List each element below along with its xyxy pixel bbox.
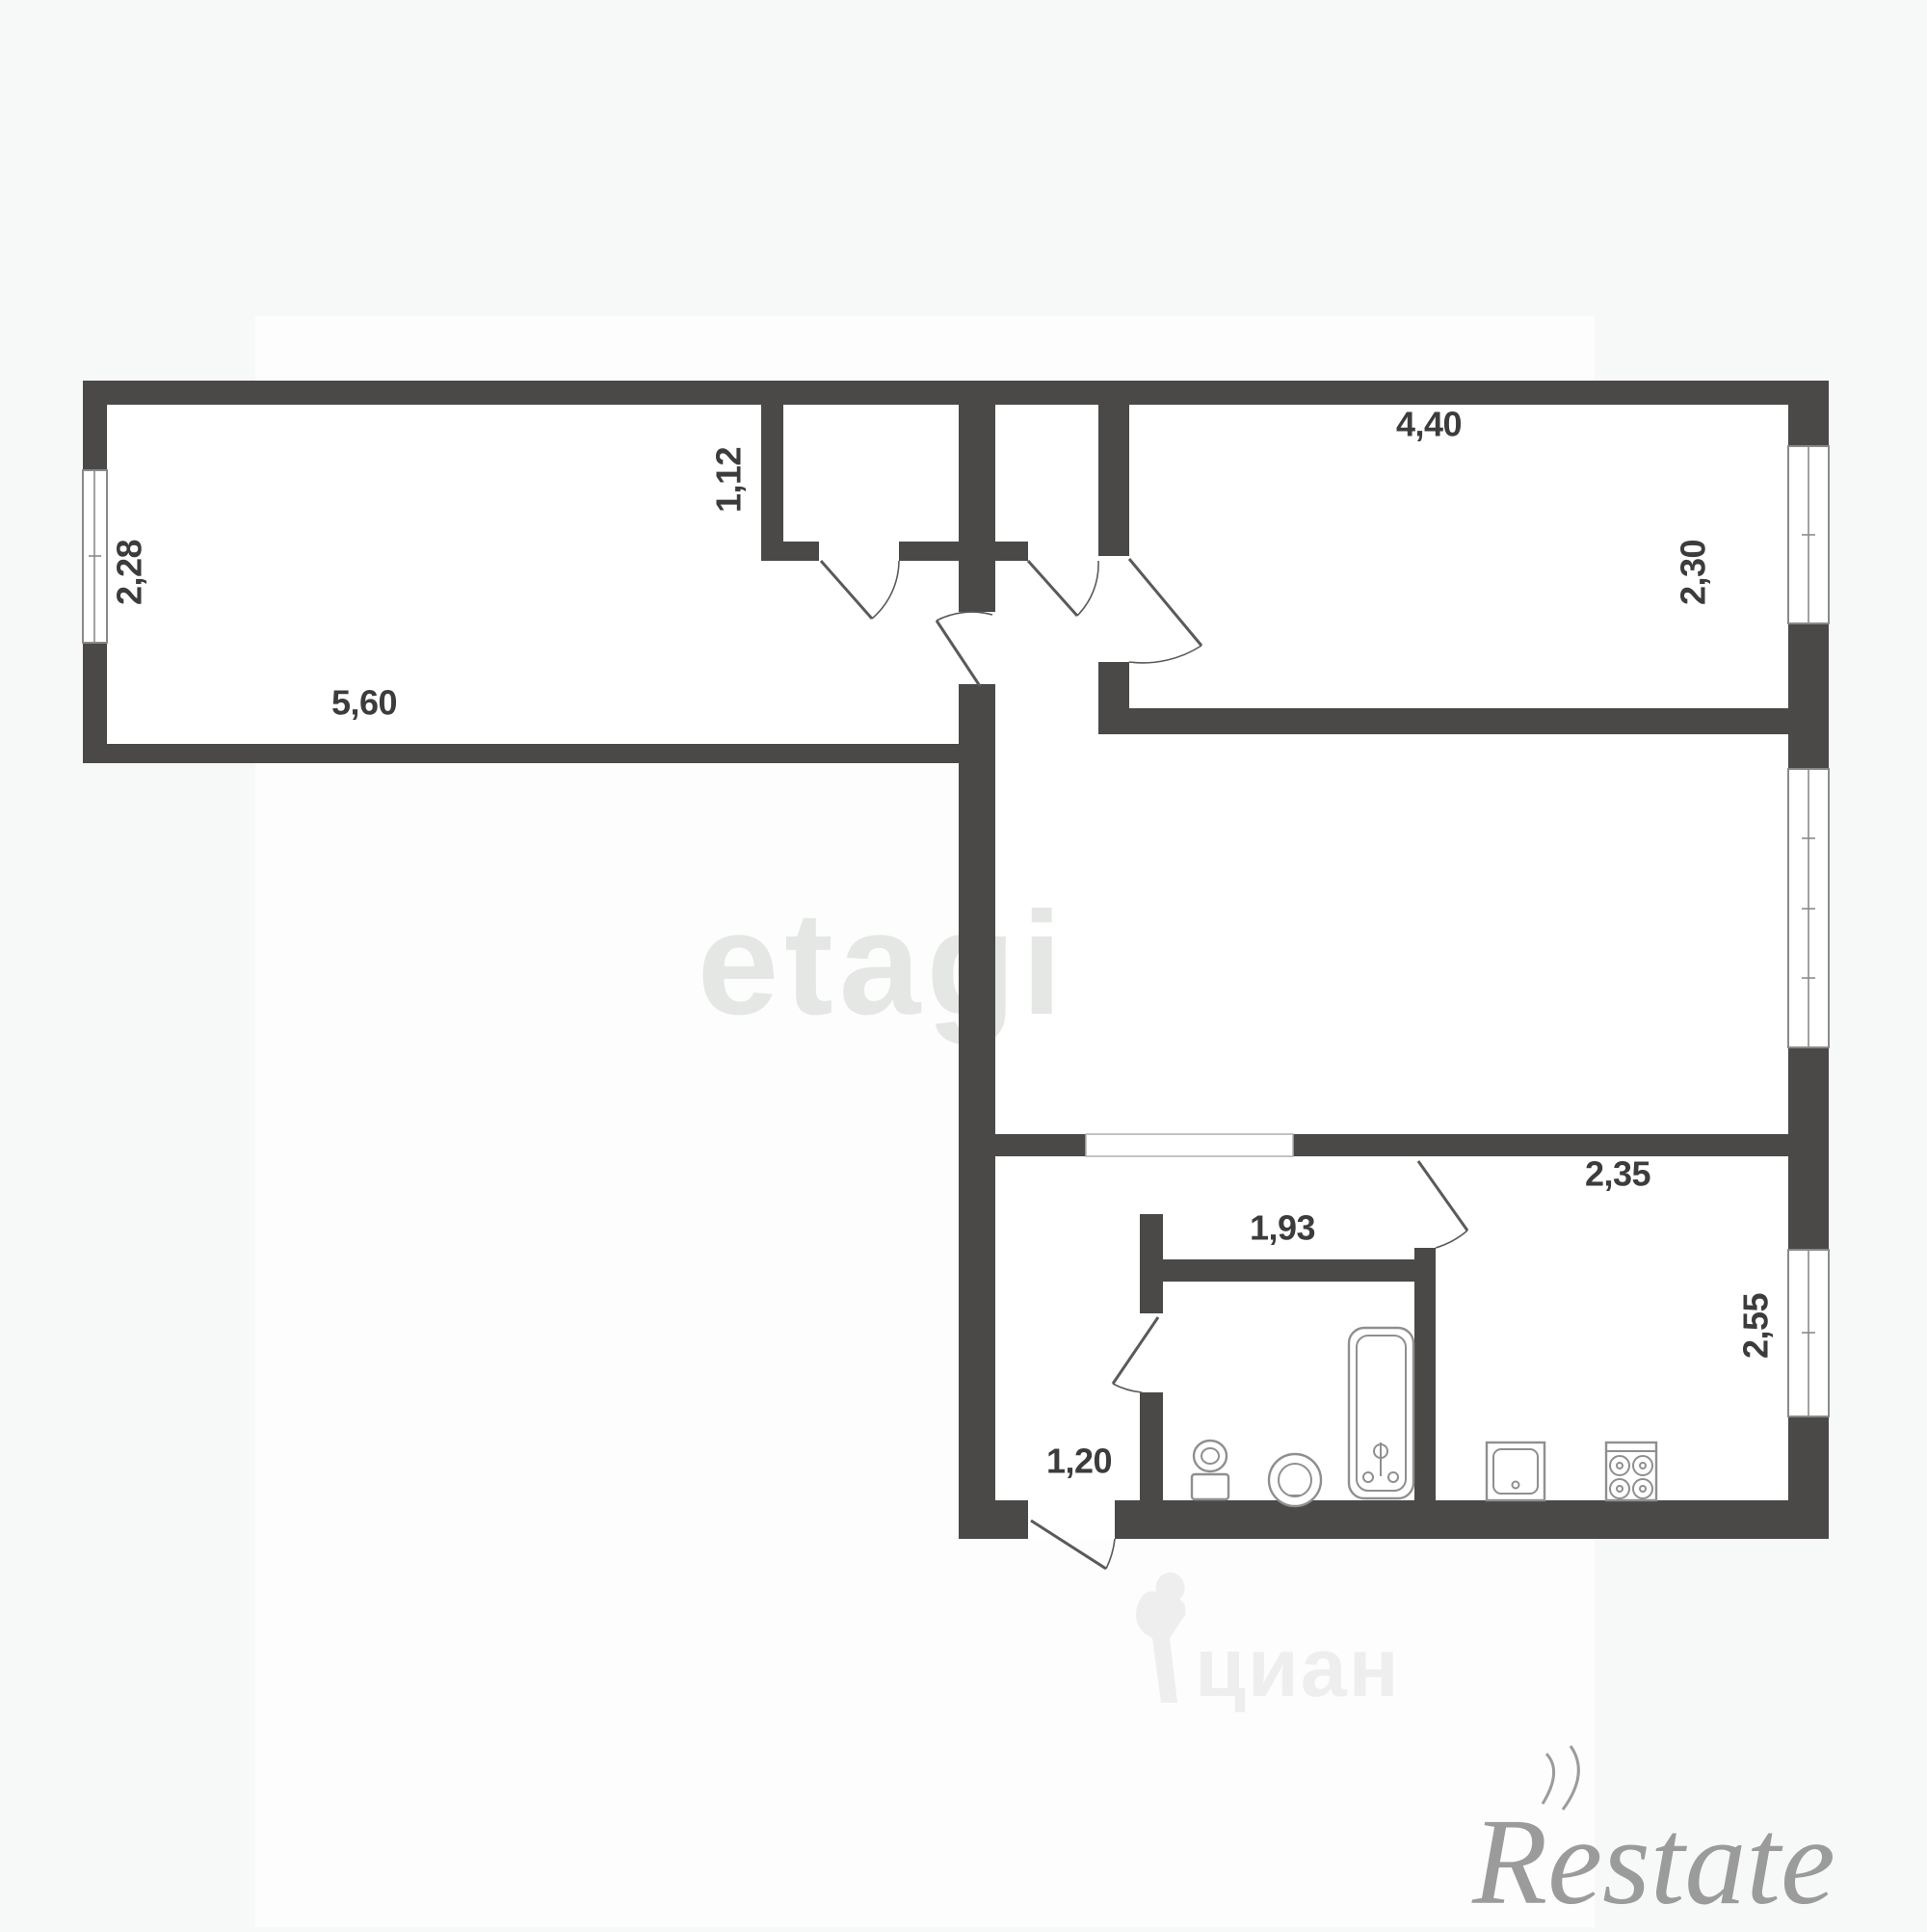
watermark-etagi: etagi (698, 882, 1069, 1045)
window-room-middle (1788, 769, 1829, 1047)
watermark-cian-text: циан (1195, 1622, 1401, 1714)
dim-room-main-window: 2,28 (110, 540, 149, 605)
wall-closet2-bottom-stub (995, 542, 1028, 561)
wall-right-seg1 (1788, 381, 1829, 446)
wall-right-seg3 (1788, 1047, 1829, 1250)
wall-bottom-left-stub (959, 1500, 1028, 1539)
floor-plan-canvas: etagi (0, 0, 1927, 1927)
wall-corridor-right (1293, 1134, 1788, 1156)
wall-top (83, 381, 1829, 405)
wall-left-upper (83, 381, 107, 470)
washbasin-icon (1269, 1454, 1321, 1506)
dim-room-main-width: 5,60 (331, 683, 397, 723)
dim-closet-depth: 1,12 (709, 447, 749, 513)
wall-closet1-left (761, 405, 783, 561)
wall-bath-kitchen-divider (1414, 1248, 1436, 1500)
kitchen-sink-icon (1487, 1442, 1544, 1500)
dim-kitchen-width: 2,35 (1585, 1154, 1651, 1194)
bathtub-icon (1349, 1328, 1413, 1498)
dim-kitchen-window: 2,55 (1736, 1292, 1776, 1359)
wall-entry-divider-lower (1140, 1392, 1163, 1500)
wall-closet1-bottom-left (761, 542, 819, 561)
wall-closet1-bottom-right (899, 542, 959, 561)
opening-corridor (1086, 1134, 1293, 1156)
watermark-restate-text: Restate (1471, 1793, 1835, 1927)
dim-entry-width: 1,20 (1046, 1442, 1112, 1481)
dim-room-right-width: 4,40 (1396, 405, 1462, 444)
wall-right-seg2 (1788, 623, 1829, 769)
dim-hall-width: 1,93 (1250, 1208, 1315, 1248)
window-room-right (1788, 446, 1829, 623)
wall-spine-lower (959, 684, 995, 1500)
wall-room-main-bottom (83, 744, 959, 763)
stove-icon (1606, 1442, 1656, 1500)
dim-room-right-window: 2,30 (1674, 540, 1713, 605)
window-room-main (83, 470, 107, 643)
wall-spine-upper (959, 405, 995, 612)
wall-room-right-bottom (1098, 708, 1829, 734)
wall-bottom-right (1115, 1500, 1829, 1539)
wall-entry-divider-upper (1140, 1214, 1163, 1313)
wall-corridor-left (995, 1134, 1086, 1156)
wall-room-right-left-upper (1098, 405, 1129, 556)
wall-bath-top (1163, 1259, 1414, 1282)
window-kitchen (1788, 1250, 1829, 1416)
